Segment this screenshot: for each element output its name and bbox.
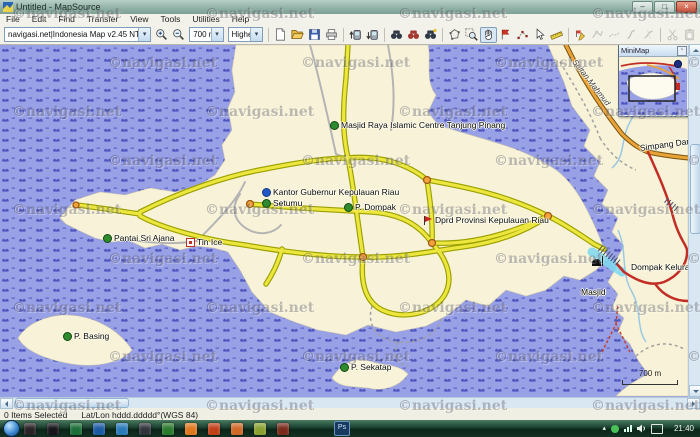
hand-tool-button[interactable] (480, 27, 497, 43)
vertical-scrollbar[interactable] (688, 44, 700, 397)
taskbar-app-1[interactable] (24, 423, 36, 435)
taskbar-app-11[interactable] (254, 423, 266, 435)
taskbar-clock[interactable]: 21:40 (674, 424, 694, 433)
clipboard-icon (683, 28, 696, 41)
map-scale-bar: 700 m (622, 369, 678, 385)
start-button[interactable] (3, 420, 20, 437)
close-button[interactable]: × (676, 1, 697, 13)
toolbar: navigasi.net|Indonesia Map v2.45 NT (fre… (0, 25, 700, 45)
zoom-in-icon (155, 28, 168, 41)
minimap-panel: MiniMap ▫ (618, 44, 690, 117)
taskbar-app-10[interactable] (231, 423, 243, 435)
zoom-tool-button[interactable] (463, 27, 480, 43)
product-selector[interactable]: navigasi.net|Indonesia Map v2.45 NT (fre… (4, 27, 151, 42)
zoom-in-button[interactable] (153, 27, 170, 43)
taskbar-app-6[interactable] (139, 423, 151, 435)
new-document-icon (274, 28, 287, 41)
scroll-left-icon[interactable] (0, 398, 13, 409)
receive-from-device-button[interactable] (364, 27, 381, 43)
toolbar-separator (268, 28, 269, 42)
menu-help[interactable]: Help (226, 14, 255, 25)
save-icon (308, 28, 321, 41)
scale-bar-label: 700 m (639, 369, 661, 378)
selection-status: 0 Items Selected (0, 410, 71, 420)
scroll-down-icon[interactable] (689, 385, 700, 397)
toolbar-separator (442, 28, 443, 42)
divide-route-button[interactable] (640, 27, 657, 43)
menu-tools[interactable]: Tools (155, 14, 187, 25)
status-bar: 0 Items Selected Lat/Lon hddd.ddddd°(WGS… (0, 407, 700, 421)
toolbar-separator (568, 28, 569, 42)
new-document-button[interactable] (272, 27, 289, 43)
cut-button[interactable] (664, 27, 681, 43)
scissors-icon (666, 28, 679, 41)
volume-icon[interactable] (637, 424, 646, 433)
zoom-out-icon (172, 28, 185, 41)
cursor-arrow-icon (533, 28, 546, 41)
waypoint-tool-button[interactable] (497, 27, 514, 43)
map-canvas[interactable]: Masjid Raya Islamic Centre Tanjung Pinan… (0, 44, 700, 397)
menu-transfer[interactable]: Transfer (81, 14, 124, 25)
print-icon (325, 28, 338, 41)
maximize-button[interactable]: □ (654, 1, 675, 13)
minimize-button[interactable]: – (632, 1, 653, 13)
network-signal-icon[interactable] (624, 425, 632, 432)
taskbar-app-2[interactable] (47, 423, 59, 435)
scroll-up-icon[interactable] (689, 44, 700, 56)
taskbar-app-3[interactable] (70, 423, 82, 435)
position-format: Lat/Lon hddd.ddddd°(WGS 84) (71, 410, 208, 420)
edit-track-icon (608, 28, 621, 41)
detail-level-selector[interactable]: Highest ▾ (228, 27, 263, 42)
taskbar-app-5[interactable] (116, 423, 128, 435)
zoom-out-button[interactable] (170, 27, 187, 43)
minimap-graphics[interactable] (619, 57, 687, 115)
edit-route-button[interactable] (589, 27, 606, 43)
find-places-button[interactable] (388, 27, 405, 43)
ruler-icon (550, 28, 563, 41)
binoculars-icon (390, 28, 403, 41)
selection-tool-button[interactable] (531, 27, 548, 43)
horizontal-scroll-thumb[interactable] (15, 398, 129, 408)
recently-found-places-button[interactable] (422, 27, 439, 43)
taskbar-app-4[interactable] (93, 423, 105, 435)
menu-utilities[interactable]: Utilities (186, 14, 225, 25)
edit-waypoint-button[interactable] (572, 27, 589, 43)
send-to-device-icon (349, 28, 362, 41)
minimap-title: MiniMap (621, 46, 677, 55)
menu-view[interactable]: View (124, 14, 154, 25)
waypoint-flag-icon (499, 28, 512, 41)
hand-tool-icon (482, 28, 495, 41)
edit-route-icon (591, 28, 604, 41)
horizontal-scrollbar[interactable] (0, 397, 700, 408)
find-nearest-places-button[interactable] (405, 27, 422, 43)
menu-file[interactable]: File (0, 14, 26, 25)
chevron-down-icon: ▾ (250, 28, 262, 41)
show-hidden-arrow-icon[interactable]: ▴ (602, 424, 606, 434)
paste-button[interactable] (681, 27, 698, 43)
system-tray: ▴ 21:40 (602, 424, 700, 434)
window-title: Untitled - MapSource (16, 2, 632, 12)
receive-from-device-icon (366, 28, 379, 41)
route-tool-icon (516, 28, 529, 41)
taskbar-app-12[interactable] (277, 423, 289, 435)
taskbar-app-photoshop[interactable]: Ps (334, 421, 350, 436)
taskbar-app-9[interactable] (208, 423, 220, 435)
taskbar-app-8[interactable] (185, 423, 197, 435)
menu-find[interactable]: Find (52, 14, 81, 25)
scroll-right-icon[interactable] (687, 398, 700, 409)
zoom-tool-icon (465, 28, 478, 41)
taskbar: Ps ▴ 21:40 (0, 420, 700, 437)
save-button[interactable] (306, 27, 323, 43)
detail-level-value: Highest (232, 30, 250, 39)
map-tool-icon (448, 28, 461, 41)
taskbar-app-7[interactable] (162, 423, 174, 435)
map-scale-value: 700 m (193, 30, 210, 39)
join-route-icon (625, 28, 638, 41)
menu-edit[interactable]: Edit (26, 14, 53, 25)
print-button[interactable] (323, 27, 340, 43)
map-scale-selector[interactable]: 700 m ▾ (189, 27, 223, 42)
send-to-device-button[interactable] (347, 27, 364, 43)
chevron-down-icon: ▾ (138, 28, 150, 41)
map-graphics (0, 44, 689, 397)
distance-bearing-tool-button[interactable] (548, 27, 565, 43)
divide-route-icon (642, 28, 655, 41)
scale-bar-line (622, 380, 678, 385)
vertical-scroll-thumb[interactable] (690, 144, 700, 234)
open-folder-icon (291, 28, 304, 41)
keyboard-layout-icon[interactable] (651, 424, 663, 434)
edit-waypoint-icon (574, 28, 587, 41)
minimap-header[interactable]: MiniMap ▫ (619, 45, 689, 57)
toolbar-separator (660, 28, 661, 42)
route-tool-button[interactable] (514, 27, 531, 43)
map-tool-button[interactable] (446, 27, 463, 43)
product-selector-value: navigasi.net|Indonesia Map v2.45 NT (fre… (8, 30, 138, 39)
scroll-track[interactable] (129, 398, 687, 408)
join-route-button[interactable] (623, 27, 640, 43)
toolbar-separator (343, 28, 344, 42)
toolbar-separator (384, 28, 385, 42)
binoculars-red-icon (407, 28, 420, 41)
title-bar[interactable]: Untitled - MapSource – □ × (0, 0, 700, 15)
binoculars-recent-icon (424, 28, 437, 41)
chevron-down-icon: ▾ (211, 28, 223, 41)
antivirus-icon[interactable] (611, 425, 619, 433)
minimap-close-icon[interactable]: ▫ (677, 46, 687, 56)
edit-track-button[interactable] (606, 27, 623, 43)
app-icon (3, 2, 13, 12)
open-file-button[interactable] (289, 27, 306, 43)
